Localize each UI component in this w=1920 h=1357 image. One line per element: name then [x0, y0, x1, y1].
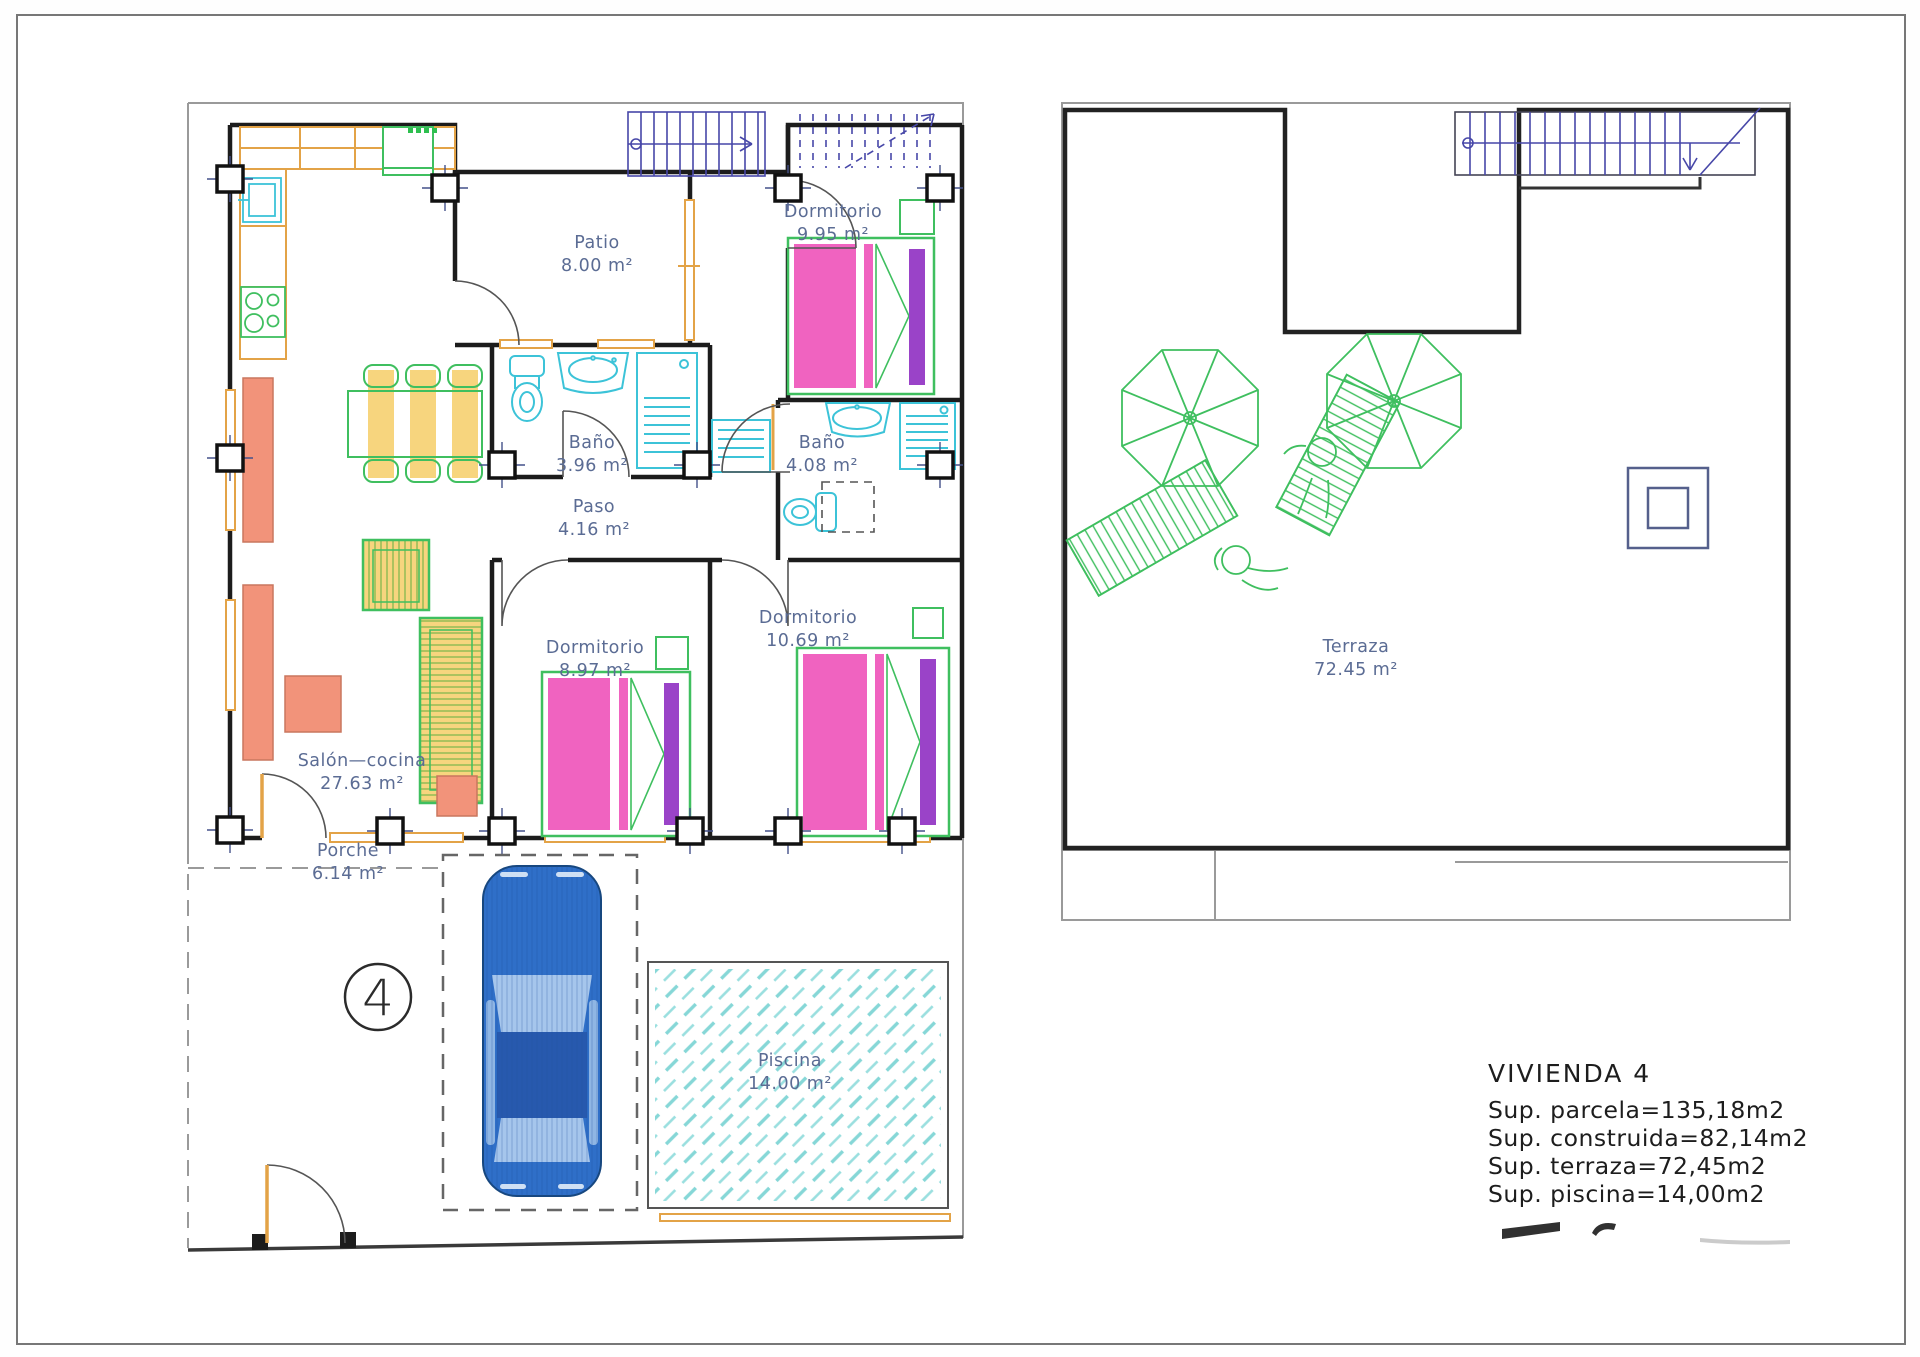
title-block-line-4: Sup. piscina=14,00m2	[1488, 1180, 1765, 1208]
car	[483, 866, 601, 1196]
entry-niche	[712, 420, 770, 472]
room-label-porche: Porche	[317, 841, 379, 861]
room-area-piscina: 14.00 m²	[748, 1074, 832, 1094]
ground-floor-plan: 4 Patio 8.00 m² Dormitorio 9.95 m² Baño …	[188, 103, 963, 1250]
title-block-line-2: Sup. construida=82,14m2	[1488, 1124, 1808, 1152]
room-area-terraza: 72.45 m²	[1314, 660, 1398, 680]
room-label-piscina: Piscina	[758, 1051, 822, 1071]
title-block-line-3: Sup. terraza=72,45m2	[1488, 1152, 1766, 1180]
floor-plan-svg: 4 Patio 8.00 m² Dormitorio 9.95 m² Baño …	[0, 0, 1920, 1357]
unit-number-badge: 4	[345, 964, 411, 1030]
room-label-patio: Patio	[574, 233, 619, 253]
kitchen-cooktop	[241, 287, 285, 337]
room-area-bath1: 3.96 m²	[556, 456, 628, 476]
plan-sheet: 4 Patio 8.00 m² Dormitorio 9.95 m² Baño …	[0, 0, 1920, 1357]
title-block-line-1: Sup. parcela=135,18m2	[1488, 1096, 1785, 1124]
room-label-dorm1: Dormitorio	[784, 202, 882, 222]
scale-smudge	[1502, 1222, 1790, 1245]
stairs-ground	[628, 112, 934, 176]
title-block: VIVIENDA 4 Sup. parcela=135,18m2 Sup. co…	[1488, 1059, 1808, 1245]
terrace-plan: Terraza 72.45 m²	[1062, 103, 1790, 920]
room-area-bath2: 4.08 m²	[786, 456, 858, 476]
room-label-bath1: Baño	[569, 433, 616, 453]
dining-table	[348, 365, 482, 482]
room-label-bath2: Baño	[799, 433, 846, 453]
plot-bottom-wall	[188, 1237, 963, 1250]
room-label-paso: Paso	[573, 497, 615, 517]
room-area-porche: 6.14 m²	[312, 864, 384, 884]
room-area-salon: 27.63 m²	[320, 774, 404, 794]
room-area-patio: 8.00 m²	[561, 256, 633, 276]
gate-jamb-right	[340, 1232, 356, 1248]
room-label-dorm3: Dormitorio	[759, 608, 857, 628]
room-area-dorm3: 10.69 m²	[766, 631, 850, 651]
unit-number: 4	[362, 969, 394, 1027]
room-area-dorm1: 9.95 m²	[797, 225, 869, 245]
room-label-dorm2: Dormitorio	[546, 638, 644, 658]
room-area-dorm2: 8.97 m²	[559, 661, 631, 681]
room-label-salon: Salón—cocina	[298, 751, 427, 771]
room-area-paso: 4.16 m²	[558, 520, 630, 540]
room-label-terraza: Terraza	[1322, 637, 1390, 657]
kitchen-fridge	[383, 127, 437, 175]
title-block-title: VIVIENDA 4	[1488, 1059, 1651, 1088]
